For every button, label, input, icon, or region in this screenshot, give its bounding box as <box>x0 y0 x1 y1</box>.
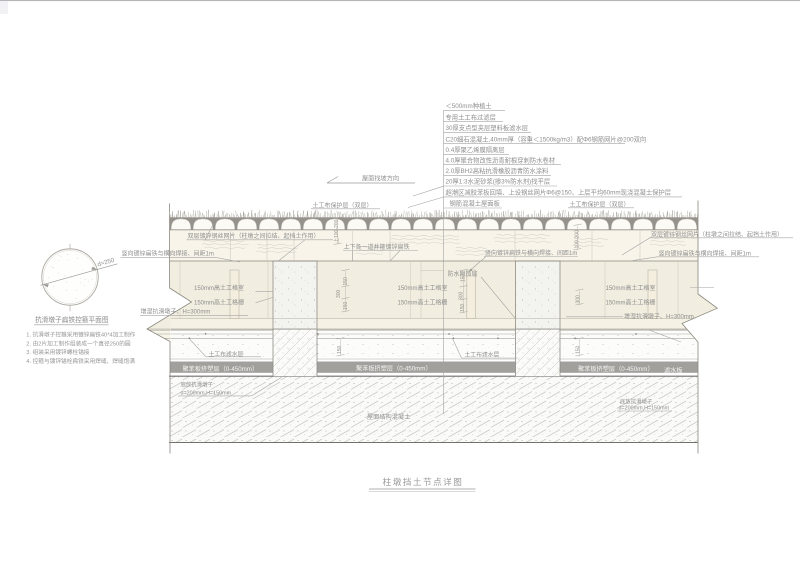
svg-text:150: 150 <box>460 303 466 312</box>
svg-text:竖向镀锌扁铁与横向焊接、间距1m: 竖向镀锌扁铁与横向焊接、间距1m <box>659 249 751 257</box>
svg-text:抗滑墩子扁铁控箍平面图: 抗滑墩子扁铁控箍平面图 <box>35 315 109 324</box>
svg-text:竖向镀锌扁铁与横向焊接、间距1m: 竖向镀锌扁铁与横向焊接、间距1m <box>485 249 577 257</box>
svg-text:0.4厚聚乙烯膜隔离层: 0.4厚聚乙烯膜隔离层 <box>446 145 505 154</box>
svg-text:双层镀锌钢丝网片（柱墩之间拉结、起挡土作用）: 双层镀锌钢丝网片（柱墩之间拉结、起挡土作用） <box>651 230 783 238</box>
svg-text:土工布保护层（双层）: 土工布保护层（双层） <box>313 201 373 209</box>
svg-text:土工布滤水层: 土工布滤水层 <box>465 351 500 359</box>
svg-text:30厚支点型夹层塑料板滤水层: 30厚支点型夹层塑料板滤水层 <box>446 123 529 132</box>
svg-text:20厚1:3水泥砂浆(掺3%防水剂)找平层: 20厚1:3水泥砂浆(掺3%防水剂)找平层 <box>446 177 551 186</box>
svg-text:d=200mm,H=150mm: d=200mm,H=150mm <box>181 390 232 396</box>
svg-text:300: 300 <box>576 295 582 304</box>
svg-text:超潮区减胶苯板回填、上设钢丝网片Φ6@150、上层平均60m: 超潮区减胶苯板回填、上设钢丝网片Φ6@150、上层平均60mm现浇混凝土保护层 <box>446 188 672 197</box>
svg-text:150mm高土工格室: 150mm高土工格室 <box>194 284 244 292</box>
svg-text:150mm高土工格室: 150mm高土工格室 <box>398 284 448 292</box>
svg-text:钢筋混凝土屋面板: 钢筋混凝土屋面板 <box>450 199 501 208</box>
svg-text:竖向镀锌扁铁与横向焊接、间距1m: 竖向镀锌扁铁与横向焊接、间距1m <box>122 250 214 258</box>
svg-text:滤水板: 滤水板 <box>664 366 683 374</box>
svg-text:150: 150 <box>343 277 349 286</box>
svg-text:上100-200: 上100-200 <box>333 219 340 243</box>
svg-text:上下各一道井箍镀锌扁铁: 上下各一道井箍镀锌扁铁 <box>344 243 410 251</box>
svg-text:3. 组装采用镀锌螺栓锚接: 3. 组装采用镀锌螺栓锚接 <box>26 348 90 356</box>
svg-text:C20细石混凝土,40mm厚（容重＜1500kg/m3）配Φ: C20细石混凝土,40mm厚（容重＜1500kg/m3）配Φ6钢筋网片@200双… <box>446 134 647 143</box>
svg-text:增湿抗滑墩子、H=300mm: 增湿抗滑墩子、H=300mm <box>141 308 211 316</box>
svg-text:150: 150 <box>343 301 349 310</box>
svg-text:专用土工布过滤层: 专用土工布过滤层 <box>446 112 496 121</box>
svg-text:150: 150 <box>576 345 582 354</box>
svg-text:4.0厚聚合物改性沥青耐根穿刺防水卷材: 4.0厚聚合物改性沥青耐根穿刺防水卷材 <box>446 155 556 164</box>
svg-text:屋面找坡方向: 屋面找坡方向 <box>362 175 399 183</box>
svg-text:底放抗滑墩子: 底放抗滑墩子 <box>620 397 653 405</box>
svg-text:4. 控箍与镀锌锚栓扁铁采用焊缝、焊缝饱满: 4. 控箍与镀锌锚栓扁铁采用焊缝、焊缝饱满 <box>26 357 135 365</box>
svg-text:聚苯板挤塑层（0-450mm）: 聚苯板挤塑层（0-450mm） <box>356 365 432 373</box>
svg-text:柱墩挡土节点详图: 柱墩挡土节点详图 <box>383 476 464 487</box>
svg-text:150mm高土工格室: 150mm高土工格室 <box>606 284 656 292</box>
svg-text:土工布保护层（双层）: 土工布保护层（双层） <box>570 200 630 208</box>
svg-text:＜500mm种植土: ＜500mm种植土 <box>446 101 492 110</box>
svg-text:聚苯板挤塑层（0-450mm）: 聚苯板挤塑层（0-450mm） <box>578 365 654 373</box>
svg-text:300: 300 <box>336 289 342 298</box>
svg-text:2.0厚BH2高粘抗滑橡胶沥青防水涂料: 2.0厚BH2高粘抗滑橡胶沥青防水涂料 <box>446 166 550 175</box>
svg-text:2. 由2片加工制作组装成一个直径250的圆: 2. 由2片加工制作组装成一个直径250的圆 <box>26 339 131 347</box>
svg-text:150: 150 <box>337 345 343 354</box>
svg-text:底放抗滑墩子: 底放抗滑墩子 <box>181 380 214 388</box>
svg-text:增湿抗滑墩子、H=300mm: 增湿抗滑墩子、H=300mm <box>624 313 694 321</box>
svg-text:150mm高土工格栅: 150mm高土工格栅 <box>194 299 244 307</box>
svg-text:150mm高土工格栅: 150mm高土工格栅 <box>606 299 656 307</box>
svg-text:屋面结构混凝土: 屋面结构混凝土 <box>367 413 410 421</box>
svg-text:1. 抗滑墩子控箍采用镀锌扁铁40*4加工制作: 1. 抗滑墩子控箍采用镀锌扁铁40*4加工制作 <box>26 331 135 339</box>
svg-text:150mm高土工格栅: 150mm高土工格栅 <box>398 299 448 307</box>
svg-text:聚苯板挤塑层（0-450mm）: 聚苯板挤塑层（0-450mm） <box>183 365 259 373</box>
